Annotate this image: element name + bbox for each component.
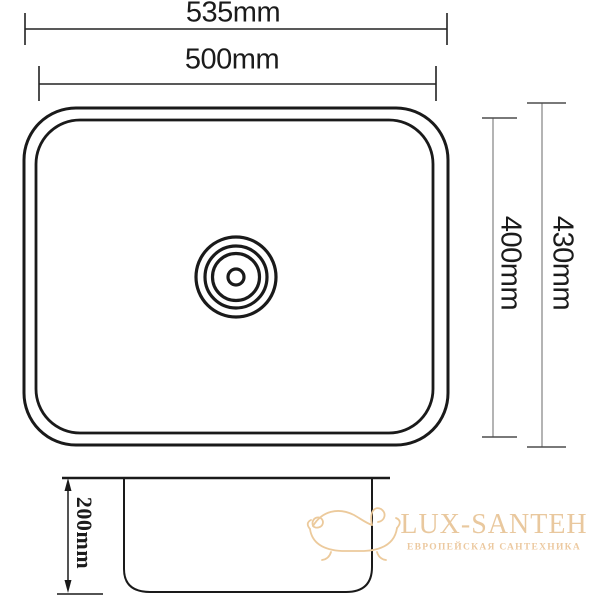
watermark-tagline: ЕВРОПЕЙСКАЯ САНТЕХНИКА <box>407 543 581 553</box>
dim-label-500: 500mm <box>185 46 279 75</box>
dim-label-535: 535mm <box>186 0 280 28</box>
dim-label-430: 430mm <box>548 216 577 310</box>
top-view-outline <box>24 108 448 445</box>
sink-technical-drawing: 535mm 500mm 400mm 430mm 200mm LUX-SANTEH… <box>0 0 600 600</box>
dim-label-200: 200mm <box>73 497 95 569</box>
watermark-brand: LUX-SANTEH <box>400 511 587 539</box>
bathtub-icon <box>308 508 400 560</box>
dim-label-400: 400mm <box>496 216 525 310</box>
side-view-outline <box>62 478 390 592</box>
drain-icon <box>196 237 276 317</box>
